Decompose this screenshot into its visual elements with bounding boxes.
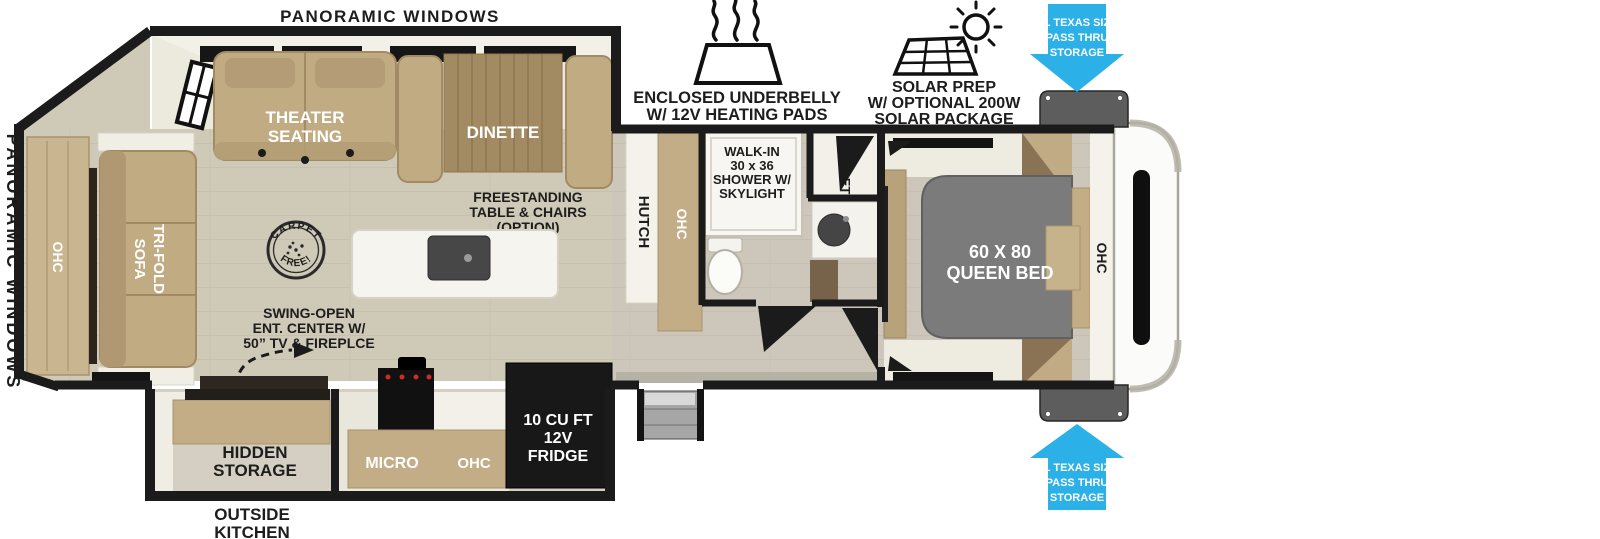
floorplan-svg: OHC TRI-FOLD SOFA THEATER SEATING DINETT… (0, 0, 1600, 539)
pass-thru-storage-box (1040, 91, 1128, 127)
faucet-icon (464, 254, 472, 262)
shower-label-line4: SKYLIGHT (719, 186, 785, 201)
swing-label-line2: ENT. CENTER W/ (253, 320, 366, 336)
fridge-label-line2: 12V (544, 430, 573, 447)
sofa-label-line2: SOFA (131, 239, 148, 280)
theater-label-line2: SEATING (268, 127, 342, 146)
hutch-label: HUTCH (635, 196, 652, 249)
pass-thru-top-line3: STORAGE (1050, 47, 1104, 59)
counter-back (185, 389, 330, 400)
outside-kitchen-line1: OUTSIDE (214, 505, 290, 524)
pass-thru-bottom-line3: STORAGE (1050, 492, 1104, 504)
solar-panel-sun-icon (895, 2, 1001, 74)
pass-thru-bottom-line1: XL TEXAS SIZE (1036, 462, 1117, 474)
bedroom-ohc-label: OHC (1094, 242, 1110, 273)
hidden-storage-line1: HIDDEN (222, 443, 287, 462)
outside-kitchen-line2: KITCHEN (214, 523, 290, 539)
heating-pad-icon (696, 0, 780, 83)
faucet-icon (843, 216, 849, 222)
panoramic-windows-top-label: PANORAMIC WINDOWS (280, 7, 500, 26)
hidden-storage-counter (173, 400, 330, 444)
front-window-icon (1133, 170, 1150, 345)
headrest (315, 58, 385, 88)
pass-thru-callout-bottom: XL TEXAS SIZE PASS THRU STORAGE (1030, 424, 1124, 510)
pass-thru-callout-top: XL TEXAS SIZE PASS THRU STORAGE (1030, 4, 1124, 92)
pass-thru-top-line2: PASS THRU (1046, 32, 1109, 44)
pass-thru-storage-box (1040, 385, 1128, 421)
micro-label: MICRO (365, 455, 418, 472)
rv-floorplan-diagram: OHC TRI-FOLD SOFA THEATER SEATING DINETT… (0, 0, 1600, 539)
swing-label-line1: SWING-OPEN (263, 305, 355, 321)
entertainment-center (200, 376, 328, 389)
rear-ohc-label: OHC (50, 241, 66, 272)
sofa-back (100, 151, 126, 367)
underbelly-label-line1: ENCLOSED UNDERBELLY (633, 89, 841, 107)
kitchen-ohc-label: OHC (457, 455, 491, 472)
dinette-bench (566, 56, 612, 188)
option-label-line1: FREESTANDING (473, 189, 583, 205)
pass-thru-bottom-line2: PASS THRU (1046, 477, 1109, 489)
theater-seating: THEATER SEATING (214, 52, 396, 164)
rear-entertainment: OHC (27, 137, 97, 375)
hutch-ohc-label: OHC (674, 208, 690, 239)
entry-steps (637, 389, 704, 441)
solar-label-line3: SOLAR PACKAGE (874, 111, 1014, 128)
solar-label-line1: SOLAR PREP (892, 79, 996, 96)
shower-label-line1: WALK-IN (724, 144, 780, 159)
outside-kitchen-callout: OUTSIDE KITCHEN (214, 505, 290, 539)
kitchen-counter (434, 392, 506, 432)
option-label-line2: TABLE & CHAIRS (469, 204, 586, 220)
bed-label-line2: QUEEN BED (946, 263, 1053, 283)
fridge-label-line1: 10 CU FT (523, 412, 593, 429)
toilet (708, 250, 742, 294)
pass-thru-top-line1: XL TEXAS SIZE (1036, 17, 1117, 29)
dinette-bench (398, 56, 442, 182)
tri-fold-sofa: TRI-FOLD SOFA (98, 133, 196, 385)
tv-panel (89, 168, 97, 364)
theater-label-line1: THEATER (265, 108, 344, 127)
solar-label-line2: W/ OPTIONAL 200W (868, 95, 1022, 112)
panoramic-windows-side-label: PANORAMIC WINDOWS (3, 134, 23, 391)
dinette-label: DINETTE (467, 123, 540, 142)
hidden-storage-line2: STORAGE (213, 461, 297, 480)
shower-label-line3: SHOWER W/ (713, 172, 791, 187)
end-table (98, 133, 194, 151)
bed-label-line1: 60 X 80 (969, 242, 1031, 262)
sofa-label-line1: TRI-FOLD (150, 224, 167, 294)
hutch-area: HUTCH OHC (626, 133, 702, 331)
fridge-label-line3: FRIDGE (528, 448, 589, 465)
solar-callout: SOLAR PREP W/ OPTIONAL 200W SOLAR PACKAG… (868, 2, 1022, 128)
underbelly-callout: ENCLOSED UNDERBELLY W/ 12V HEATING PADS (633, 0, 841, 124)
sink (428, 236, 490, 280)
dinette-table (444, 54, 562, 172)
underbelly-label-line2: W/ 12V HEATING PADS (647, 106, 828, 124)
divider-wall (331, 389, 339, 496)
slide-wall (155, 392, 173, 492)
headrest (225, 58, 295, 88)
vanity-cabinet (810, 260, 838, 302)
shower-label-line2: 30 x 36 (730, 158, 773, 173)
dinette: DINETTE (398, 54, 612, 188)
kettle-icon (398, 357, 426, 370)
